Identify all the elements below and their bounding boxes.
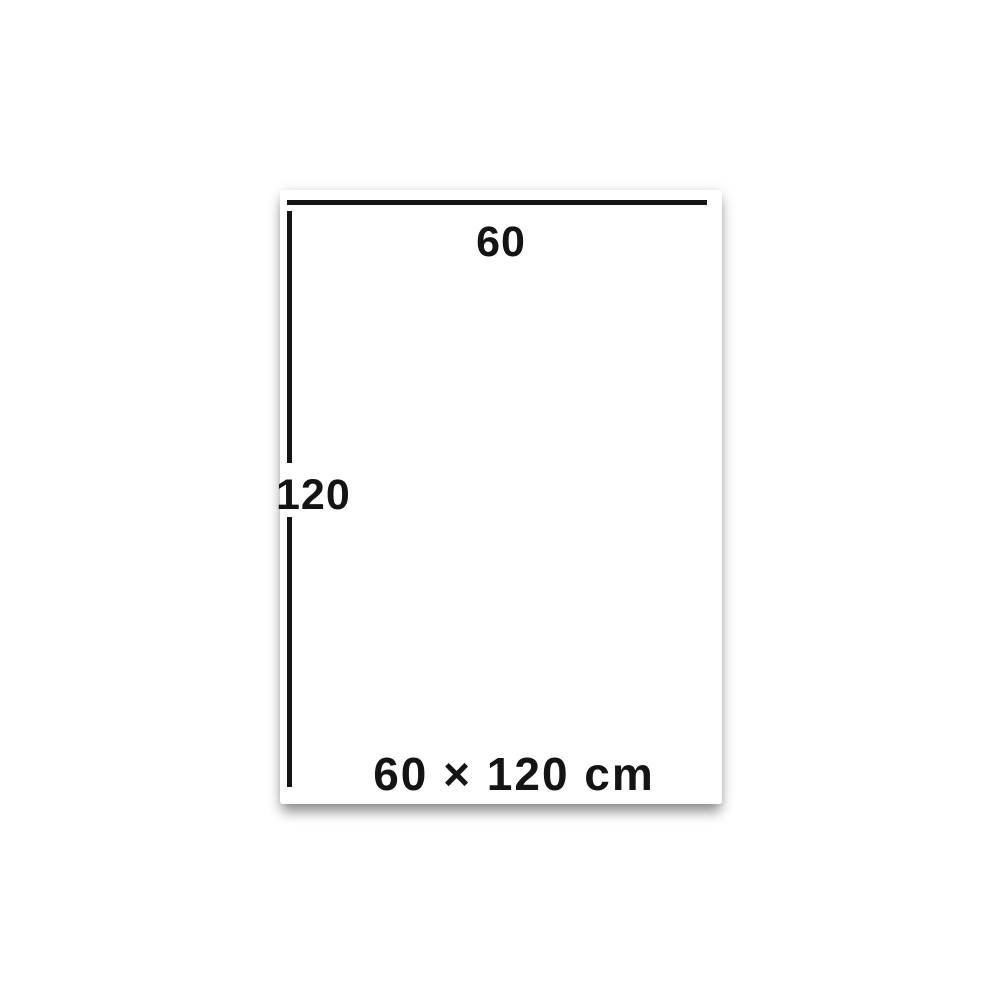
width-value-label: 60 [280,221,722,264]
product-panel: 60 120 60 × 120 cm [280,190,722,804]
height-value-label: 120 [276,474,351,517]
height-dimension-line-lower [287,517,292,787]
diagram-stage: 60 120 60 × 120 cm [0,0,1000,1000]
size-caption: 60 × 120 cm [293,751,735,797]
width-dimension-line [287,200,707,205]
